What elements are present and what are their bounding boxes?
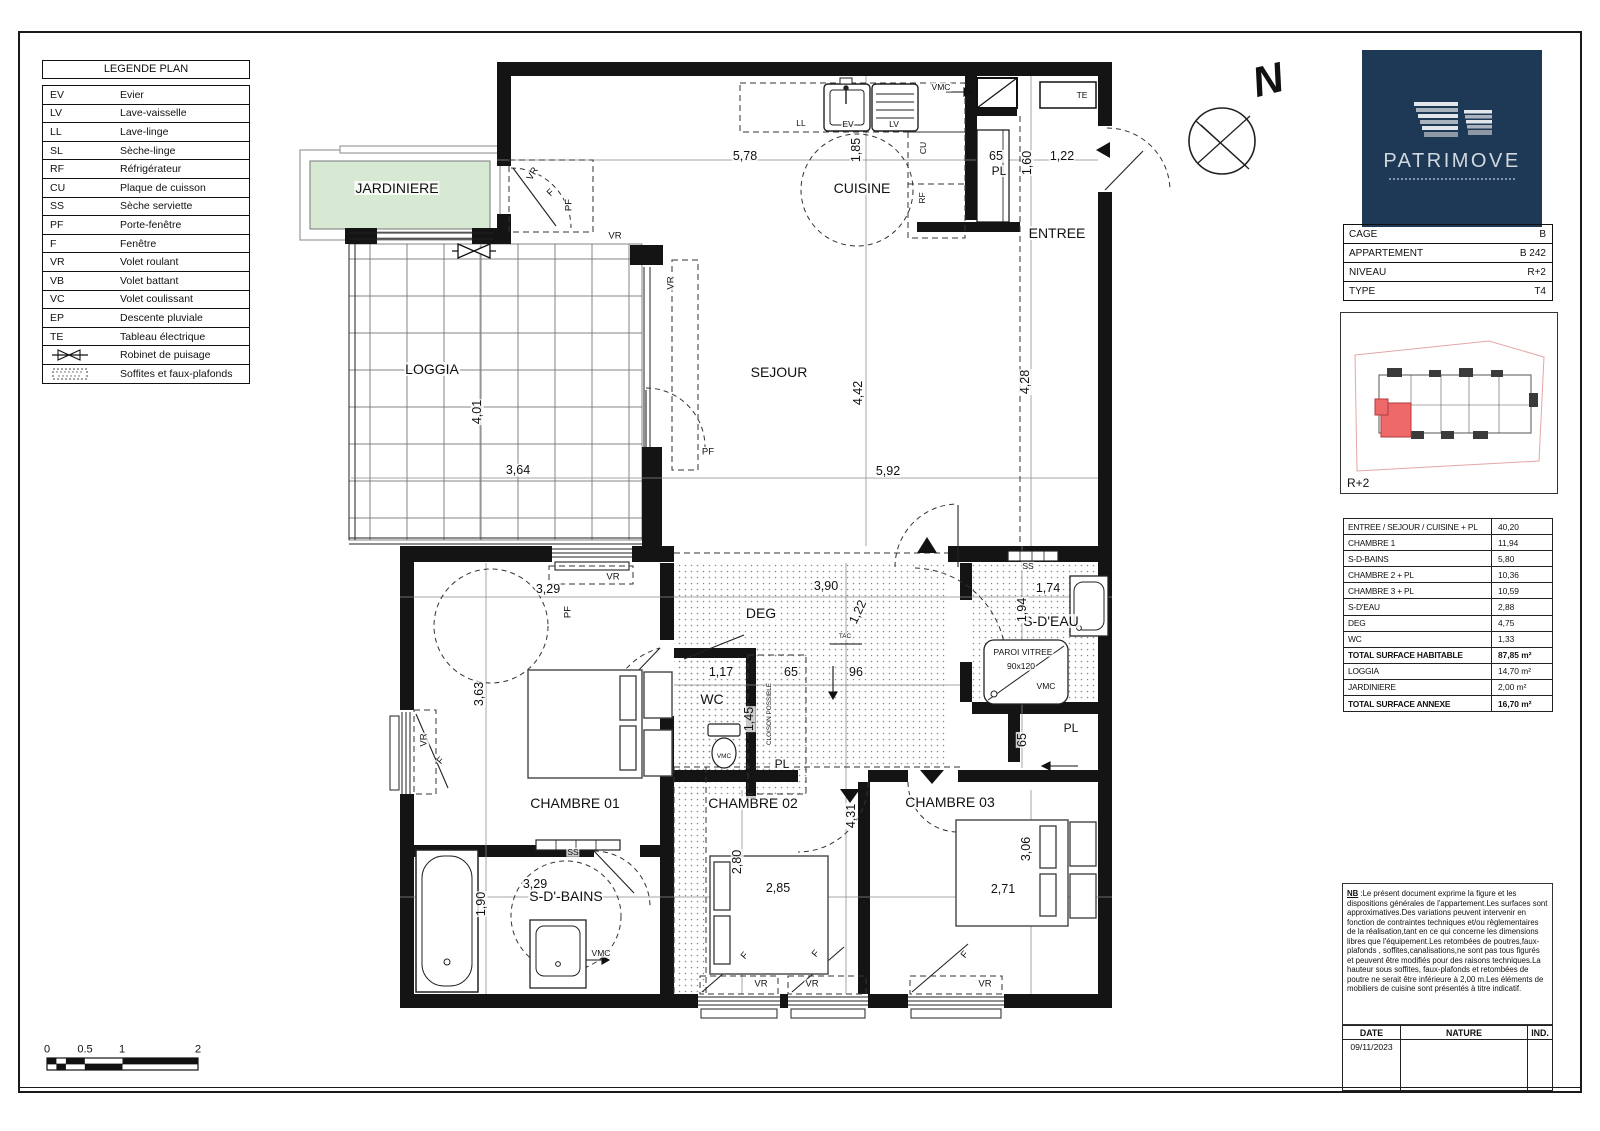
info-label: TYPE <box>1344 286 1534 297</box>
plan-label: 65 <box>783 666 799 679</box>
legend-row: RF Réfrigérateur <box>42 160 250 179</box>
plan-label: JARDINIERE <box>354 181 439 195</box>
plan-label: 2,85 <box>765 882 791 895</box>
scale-tick: 0.5 <box>76 1045 93 1056</box>
legend-label: Volet battant <box>98 275 178 287</box>
soffites-icon <box>43 367 98 381</box>
legend-code: PF <box>43 219 98 231</box>
legend-row: VC Volet coulissant <box>42 291 250 310</box>
surface-row: ENTREE / SEJOUR / CUISINE + PL 40,20 <box>1343 518 1553 535</box>
plan-label: WC <box>699 692 724 706</box>
revision-nature <box>1401 1040 1528 1090</box>
plan-label: CU <box>919 141 928 155</box>
legend-title: LEGENDE PLAN <box>42 60 250 79</box>
surface-value: 11,94 <box>1491 535 1552 550</box>
plan-label: 1,17 <box>708 666 734 679</box>
legend-row: CU Plaque de cuisson <box>42 179 250 198</box>
plan-label: VMC <box>1036 682 1057 691</box>
surface-label: WC <box>1344 634 1491 644</box>
plan-label: 5,92 <box>875 465 901 478</box>
surface-label: CHAMBRE 1 <box>1344 538 1491 548</box>
surface-label: DEG <box>1344 618 1491 628</box>
plan-label: VR <box>666 275 676 290</box>
legend-code: VB <box>43 275 98 287</box>
surface-label: S-D'EAU <box>1344 602 1491 612</box>
surface-value: 14,70 m² <box>1491 664 1552 679</box>
legend-code: TE <box>43 331 98 343</box>
legend-row: TE Tableau électrique <box>42 328 250 347</box>
surface-row: JARDINIERE 2,00 m² <box>1343 680 1553 696</box>
info-row: CAGE B <box>1343 224 1553 244</box>
plan-label: 1,94 <box>1016 597 1029 623</box>
revision-table: DATE NATURE IND. 09/11/2023 <box>1342 1025 1553 1091</box>
legend-row: EP Descente pluviale <box>42 309 250 328</box>
legend-label: Porte-fenêtre <box>98 219 181 231</box>
nb-prefix: NB <box>1347 889 1358 898</box>
surface-value: 16,70 m² <box>1491 696 1552 711</box>
legend-row: SS Sèche serviette <box>42 198 250 217</box>
legend-row: EV Evier <box>42 85 250 105</box>
legend-code: LL <box>43 126 98 138</box>
surface-row: TOTAL SURFACE ANNEXE 16,70 m² <box>1343 696 1553 712</box>
legend-panel: LEGENDE PLAN EV Evier LV Lave-vaisselle … <box>42 60 250 384</box>
plan-label: PF <box>563 605 573 619</box>
legend-label: Volet roulant <box>98 256 178 268</box>
plan-label: 1,74 <box>1035 582 1061 595</box>
plan-label: VR <box>977 979 992 989</box>
plan-label: 4,01 <box>471 399 484 425</box>
plan-label: PL <box>991 165 1008 177</box>
legend-label: Sèche serviette <box>98 200 192 212</box>
legend-code: CU <box>43 182 98 194</box>
plan-label: PL <box>774 758 791 770</box>
legend-label: Lave-vaisselle <box>98 107 187 119</box>
plan-label: 1,60 <box>1021 150 1034 176</box>
plan-label: 3,06 <box>1020 836 1033 862</box>
info-label: APPARTEMENT <box>1344 248 1520 259</box>
plan-label: 4,42 <box>852 380 865 406</box>
revision-col-date: DATE <box>1343 1026 1401 1039</box>
plan-label: VMC <box>716 754 732 760</box>
surface-row: DEG 4,75 <box>1343 616 1553 632</box>
plan-label: PF <box>564 198 574 212</box>
plan-label: PL <box>1063 722 1080 734</box>
plan-label: 96 <box>848 666 864 679</box>
scale-tick: 2 <box>194 1045 202 1056</box>
surface-label: LOGGIA <box>1344 666 1491 676</box>
plan-label: SEJOUR <box>750 365 809 379</box>
surface-row: S-D-BAINS 5,80 <box>1343 551 1553 567</box>
plan-label: CLOISON POSSIBLE <box>767 682 773 746</box>
plan-label: CHAMBRE 01 <box>529 796 620 810</box>
plan-label: 5,78 <box>732 150 758 163</box>
plan-label: LV <box>888 120 900 129</box>
north-compass <box>1189 108 1255 174</box>
plan-label: 4,31 <box>845 803 858 829</box>
plan-label: TE <box>1076 91 1089 100</box>
revision-row: 09/11/2023 <box>1342 1040 1553 1091</box>
plan-label: DEG <box>745 606 777 620</box>
plan-label: 3,63 <box>473 681 486 707</box>
plan-label: 4,28 <box>1019 369 1032 395</box>
plan-label: CHAMBRE 03 <box>904 795 995 809</box>
legend-label: Tableau électrique <box>98 331 205 343</box>
legend-code: LV <box>43 107 98 119</box>
scale-tick: 0 <box>43 1045 51 1056</box>
plan-label: 3,29 <box>522 878 548 891</box>
keyplan-level: R+2 <box>1347 476 1369 490</box>
legend-row: F Fenêtre <box>42 235 250 254</box>
scale-tick: 1 <box>118 1045 126 1056</box>
legend-label: Soffites et faux-plafonds <box>98 368 232 380</box>
info-value: T4 <box>1534 286 1552 297</box>
legend-label: Fenêtre <box>98 238 156 250</box>
surface-value: 10,59 <box>1491 583 1552 598</box>
info-value: B <box>1539 229 1552 240</box>
plan-label: PF <box>701 447 715 457</box>
legend-label: Robinet de puisage <box>98 349 211 361</box>
legend-row: VR Volet roulant <box>42 253 250 272</box>
plan-label: 1,85 <box>850 137 863 163</box>
plan-label: EV <box>841 120 854 129</box>
surface-row: CHAMBRE 3 + PL 10,59 <box>1343 583 1553 599</box>
legend-label: Volet coulissant <box>98 293 193 305</box>
legend-label: Lave-linge <box>98 126 168 138</box>
plan-label: SS <box>1021 562 1034 571</box>
plan-sheet: JARDINIERECUISINEENTREESEJOURLOGGIADEGS-… <box>0 0 1600 1131</box>
surface-label: S-D-BAINS <box>1344 554 1491 564</box>
legend-label: Réfrigérateur <box>98 163 181 175</box>
info-label: NIVEAU <box>1344 267 1527 278</box>
surface-label: CHAMBRE 2 + PL <box>1344 570 1491 580</box>
surface-label: TOTAL SURFACE ANNEXE <box>1344 699 1491 709</box>
legend-code: SS <box>43 200 98 212</box>
revision-header: DATE NATURE IND. <box>1342 1025 1553 1040</box>
info-value: R+2 <box>1527 267 1552 278</box>
legend-label: Evier <box>98 89 144 101</box>
revision-ind <box>1528 1040 1552 1090</box>
plan-label: VMC <box>931 83 952 92</box>
legend-row: SL Sèche-linge <box>42 142 250 161</box>
surface-value: 4,75 <box>1491 616 1552 631</box>
plan-label: 1,22 <box>1049 150 1075 163</box>
surface-value: 87,85 m² <box>1491 648 1552 663</box>
plan-label: 1,90 <box>475 891 488 917</box>
surface-value: 2,88 <box>1491 599 1552 614</box>
legend-row: LL Lave-linge <box>42 123 250 142</box>
surface-label: TOTAL SURFACE HABITABLE <box>1344 650 1491 660</box>
plan-label: 3,90 <box>813 580 839 593</box>
keyplan-drawing <box>1341 313 1555 489</box>
plan-label: VMC <box>591 949 612 958</box>
plan-label: 3,64 <box>505 464 531 477</box>
legend-row: LV Lave-vaisselle <box>42 105 250 124</box>
surface-row: S-D'EAU 2,88 <box>1343 599 1553 615</box>
surface-value: 40,20 <box>1491 519 1552 534</box>
surface-row: LOGGIA 14,70 m² <box>1343 664 1553 680</box>
loggia-tiling <box>349 244 642 540</box>
info-row: TYPE T4 <box>1343 282 1553 301</box>
legend-row: VB Volet battant <box>42 272 250 291</box>
legend-code: EP <box>43 312 98 324</box>
legend-code: F <box>43 238 98 250</box>
plan-label: SS <box>566 848 579 857</box>
revision-col-nature: NATURE <box>1401 1026 1528 1039</box>
robinet-icon <box>43 348 98 362</box>
scale-bar <box>47 1058 198 1070</box>
surface-label: ENTREE / SEJOUR / CUISINE + PL <box>1344 522 1491 532</box>
keyplan-box: R+2 <box>1340 312 1558 494</box>
revision-col-ind: IND. <box>1528 1026 1552 1039</box>
plan-label: VR <box>419 732 429 747</box>
plan-label: S-D'-BAINS <box>528 889 603 903</box>
surface-row: TOTAL SURFACE HABITABLE 87,85 m² <box>1343 648 1553 664</box>
revision-date: 09/11/2023 <box>1343 1040 1401 1090</box>
apartment-info-table: CAGE B APPARTEMENT B 242 NIVEAU R+2 TYPE… <box>1343 224 1553 301</box>
plan-label: VR <box>607 231 622 241</box>
plan-label: CHAMBRE 02 <box>707 796 798 810</box>
plan-label: LL <box>795 119 806 128</box>
plan-label: VR <box>605 572 620 582</box>
kitchen-fixtures <box>824 78 918 131</box>
info-label: CAGE <box>1344 229 1539 240</box>
info-row: APPARTEMENT B 242 <box>1343 244 1553 263</box>
plan-label: LOGGIA <box>404 362 460 376</box>
plan-label: ENTREE <box>1028 226 1087 240</box>
legend-row: PF Porte-fenêtre <box>42 216 250 235</box>
nb-text: :Le présent document exprime la figure e… <box>1347 889 1547 993</box>
plan-label: PAROI VITREE <box>993 648 1054 657</box>
surface-value: 5,80 <box>1491 551 1552 566</box>
legend-code: SL <box>43 145 98 157</box>
legend-code: EV <box>43 89 98 101</box>
plan-label: TAC <box>838 634 852 640</box>
legend-code: VC <box>43 293 98 305</box>
surface-row: CHAMBRE 1 11,94 <box>1343 535 1553 551</box>
plan-label: S-D'EAU <box>1022 614 1080 628</box>
plan-label: VR <box>753 979 768 989</box>
plan-label: 65 <box>988 150 1004 163</box>
legend-label: Sèche-linge <box>98 145 175 157</box>
legend-code: RF <box>43 163 98 175</box>
info-row: NIVEAU R+2 <box>1343 263 1553 282</box>
plan-label: VR <box>804 979 819 989</box>
surface-row: WC 1,33 <box>1343 632 1553 648</box>
surface-label: JARDINIERE <box>1344 682 1491 692</box>
surface-table: ENTREE / SEJOUR / CUISINE + PL 40,20 CHA… <box>1343 518 1553 712</box>
plan-label: 65 <box>1016 732 1029 748</box>
legend-row-robinet: Robinet de puisage <box>42 346 250 365</box>
plan-label: CUISINE <box>833 181 892 195</box>
plan-label: 3,29 <box>535 583 561 596</box>
plan-label: 90x120 <box>1006 662 1036 671</box>
legend-label: Descente pluviale <box>98 312 203 324</box>
legend-row-soffites: Soffites et faux-plafonds <box>42 365 250 384</box>
patrimove-logo: PATRIMOVE <box>1362 50 1542 227</box>
surface-value: 2,00 m² <box>1491 680 1552 695</box>
legend-label: Plaque de cuisson <box>98 182 206 194</box>
surface-label: CHAMBRE 3 + PL <box>1344 586 1491 596</box>
nb-note: NB :Le présent document exprime la figur… <box>1342 883 1553 1025</box>
brand-tagline <box>1389 178 1515 180</box>
brand-name: PATRIMOVE <box>1383 150 1520 173</box>
legend-code: VR <box>43 256 98 268</box>
info-value: B 242 <box>1520 248 1552 259</box>
surface-value: 1,33 <box>1491 632 1552 647</box>
buildings-icon <box>1404 98 1500 144</box>
plan-label: RF <box>918 191 927 204</box>
plan-label: 2,80 <box>731 849 744 875</box>
surface-value: 10,36 <box>1491 567 1552 582</box>
surface-row: CHAMBRE 2 + PL 10,36 <box>1343 567 1553 583</box>
plan-label: 1,45 <box>743 706 756 732</box>
plan-label: 2,71 <box>990 883 1016 896</box>
